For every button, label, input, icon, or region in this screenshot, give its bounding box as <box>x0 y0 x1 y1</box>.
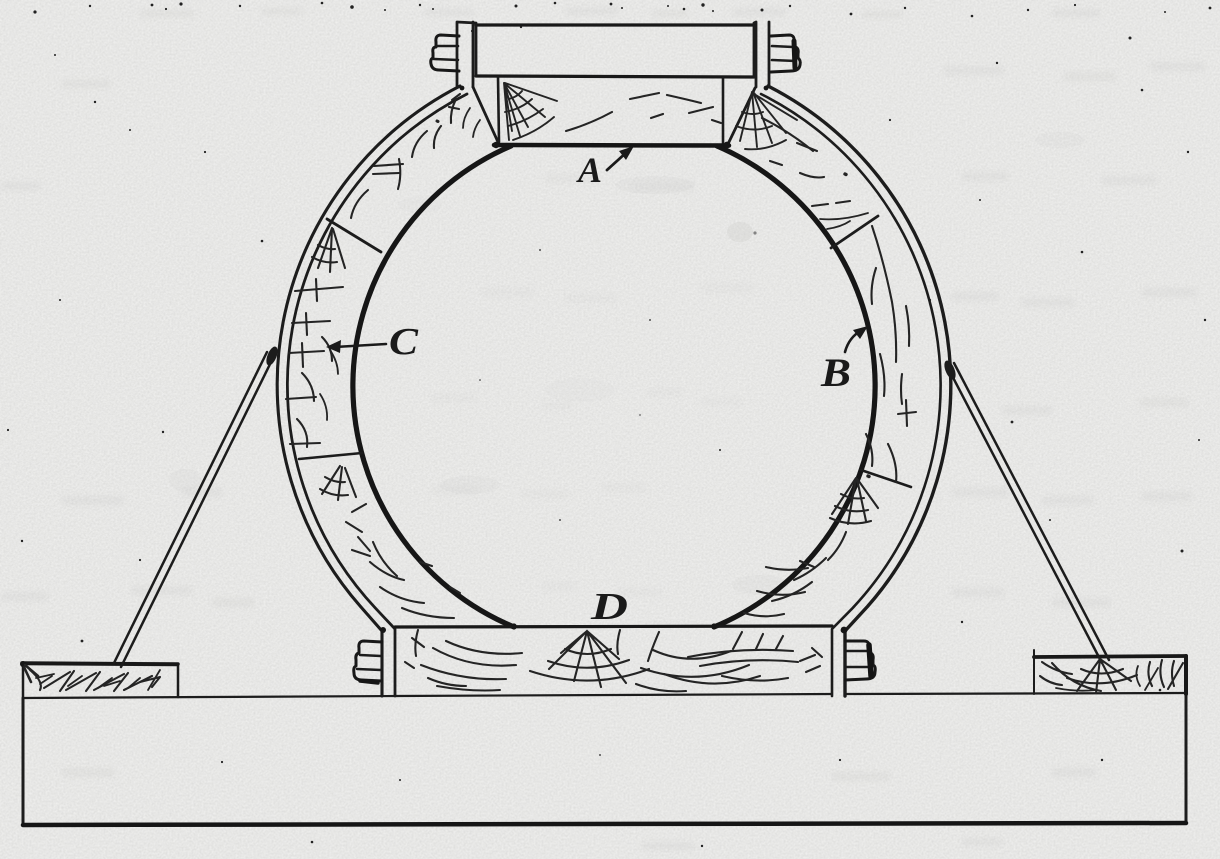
svg-text:A: A <box>576 150 602 190</box>
svg-text:C: C <box>389 321 419 363</box>
svg-text:D: D <box>590 586 628 628</box>
svg-text:B: B <box>820 350 851 395</box>
